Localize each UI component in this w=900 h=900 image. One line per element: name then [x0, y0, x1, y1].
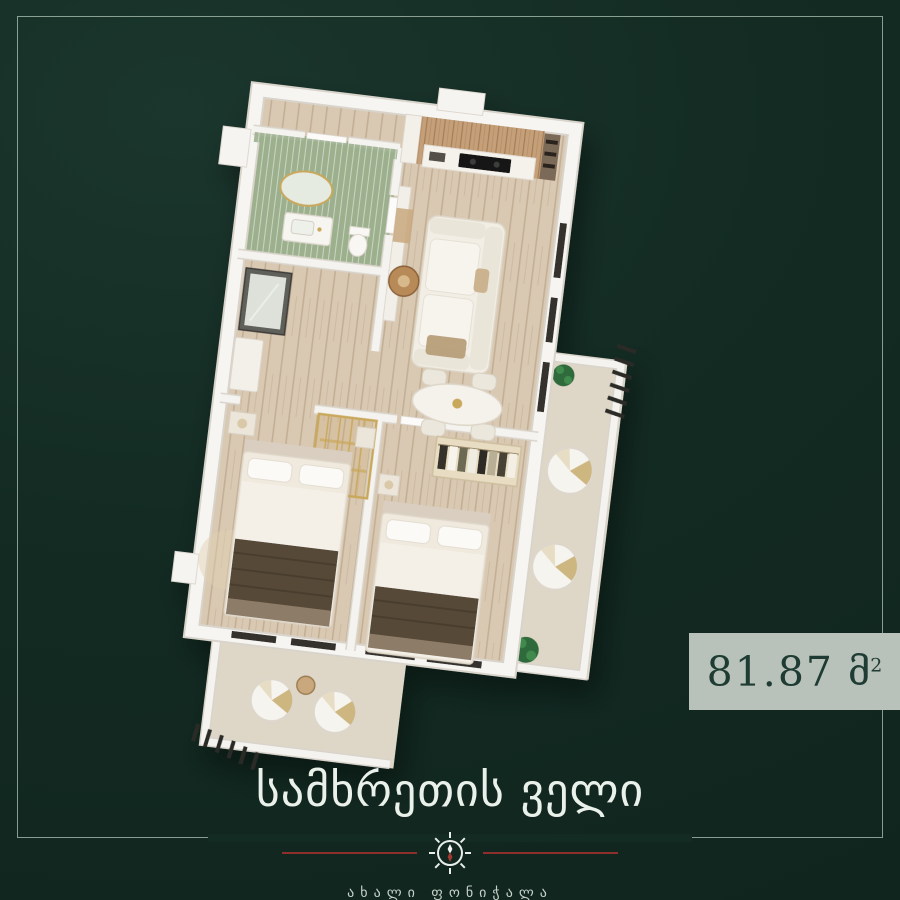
wall-bump [172, 551, 199, 584]
poster-canvas: 81.87 მ2 სამხრეთის ველი [0, 0, 900, 900]
divider-line-right [483, 852, 618, 854]
area-unit: მ2 [848, 650, 882, 694]
nightstand-icon [228, 411, 256, 436]
divider-line-left [282, 852, 417, 854]
district-subtitle: ახალი ფონიჭალა [347, 885, 553, 900]
compass-icon [427, 830, 473, 876]
bed-icon [365, 500, 491, 664]
area-value: 81.87 [707, 648, 834, 696]
area-badge: 81.87 მ2 [689, 633, 900, 710]
brand-block: სამხრეთის ველი ახალი ფონი [0, 763, 900, 900]
standing-mirror-icon [239, 268, 292, 335]
bed-icon [224, 439, 353, 628]
nightstand-icon [378, 474, 400, 496]
brand-divider [282, 831, 618, 875]
console-icon [229, 337, 263, 392]
project-title: სამხრეთის ველი [256, 763, 644, 817]
nightstand-icon [355, 427, 375, 449]
wall-bump [219, 126, 251, 167]
